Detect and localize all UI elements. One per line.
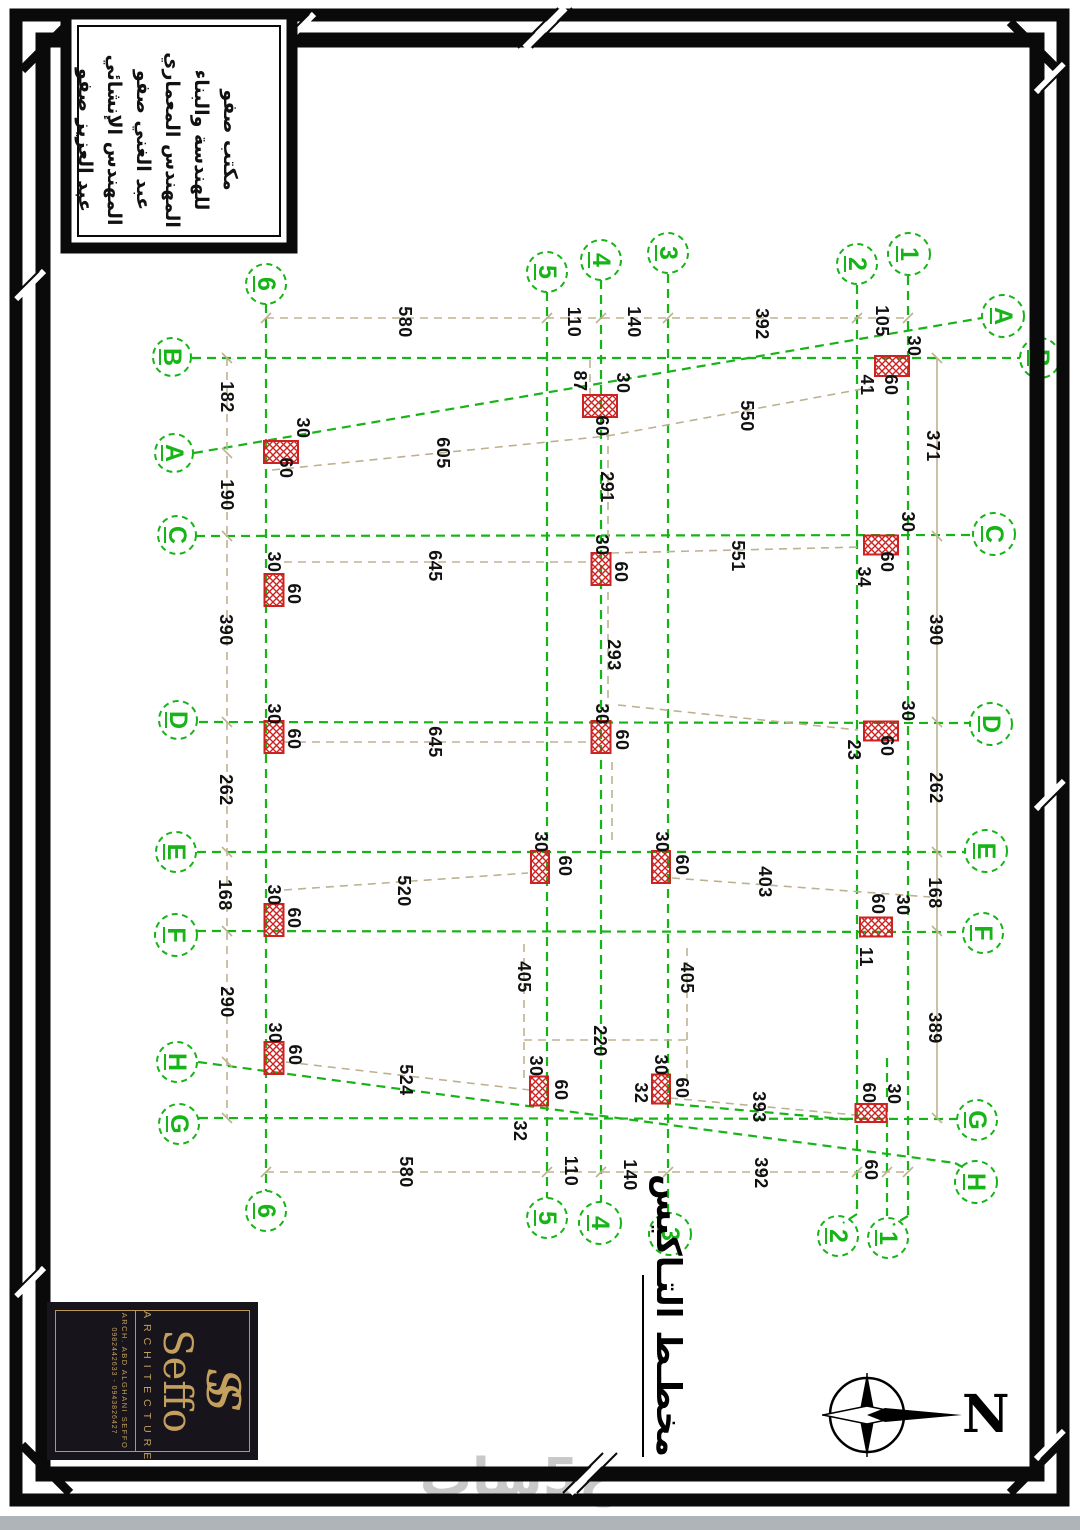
dim-label: 551 <box>728 540 748 572</box>
dim-label: 60 <box>284 907 304 928</box>
grid-bubble-label: H <box>962 1173 990 1191</box>
dim-label: 30 <box>592 703 612 724</box>
dim-label: 30 <box>904 335 924 356</box>
grid-bubble-label: G <box>165 1114 193 1133</box>
dim-label: 30 <box>893 894 913 915</box>
khamsat-watermark: خ5سات <box>408 1448 628 1508</box>
wall-line <box>843 1214 857 1223</box>
dim-label: 30 <box>613 372 633 393</box>
dim-label: 11 <box>856 947 876 967</box>
column-marker <box>860 918 892 937</box>
dim-label: 30 <box>264 551 284 572</box>
grid-bubble-label: 6 <box>252 1204 280 1218</box>
logo-tagline: ARCHITECTURE <box>135 1311 153 1451</box>
dim-label: 32 <box>631 1082 651 1103</box>
dim-label: 393 <box>749 1091 769 1123</box>
grid-line-horizontal <box>196 535 973 536</box>
dim-label: 403 <box>755 866 775 898</box>
grid-bubble-label: 6 <box>252 277 280 291</box>
dim-label: 60 <box>276 457 296 478</box>
grid-bubble-label: B <box>1026 349 1054 367</box>
dim-label: 60 <box>555 855 575 876</box>
title-block-line: عبد الغني صفو <box>128 45 154 235</box>
bottom-strip <box>0 1516 1080 1530</box>
dim-label: 60 <box>612 729 632 750</box>
grid-bubble-label: A <box>989 307 1017 325</box>
dim-label: 290 <box>217 986 237 1018</box>
grid-bubble-label: D <box>164 711 192 729</box>
grid-bubble-label: F <box>162 927 190 942</box>
seffo-logo: SS Seffo ARCHITECTURE ARCH. ABD ALGHANI … <box>47 1302 258 1460</box>
dim-label: 60 <box>868 893 888 914</box>
column-marker <box>652 1075 670 1104</box>
dim-label: 520 <box>394 875 414 907</box>
dim-label: 30 <box>265 1022 285 1043</box>
dim-label: 60 <box>611 561 631 582</box>
title-block: مكتب صفو للهندسة والبناء المهندس المعمار… <box>60 8 297 253</box>
logo-subtitle: ARCH. ABD ALGHANI SEFFO <box>120 1311 129 1451</box>
grid-bubble-label: E <box>162 844 190 861</box>
dim-label: 389 <box>925 1012 945 1044</box>
grid-bubble-label: 4 <box>586 1216 614 1230</box>
column-marker <box>265 1042 284 1074</box>
dim-label: 168 <box>215 879 235 911</box>
grid-bubble-label: B <box>158 348 186 366</box>
dim-label: 371 <box>923 430 943 462</box>
dim-label: 110 <box>564 307 584 338</box>
dim-label: 30 <box>531 831 551 852</box>
dim-label: 392 <box>752 308 772 340</box>
dim-label: 30 <box>898 511 918 532</box>
dim-label: 390 <box>216 614 236 646</box>
dim-label: 168 <box>925 877 945 909</box>
dim-label: 87 <box>570 370 590 391</box>
dim-label: 60 <box>877 735 897 756</box>
dim-label: 30 <box>884 1083 904 1104</box>
dim-label: 30 <box>293 417 313 438</box>
column-marker <box>875 356 909 376</box>
dim-label: 60 <box>861 1159 881 1180</box>
grid-bubble-label: D <box>977 715 1005 733</box>
logo-monogram-icon: SS <box>199 1311 247 1451</box>
grid-bubble-label: 5 <box>533 265 561 279</box>
dim-label: 60 <box>877 551 897 572</box>
logo-phones: 0982442633 - 0943826427 <box>110 1311 117 1451</box>
dim-label: 60 <box>284 583 304 604</box>
title-block-line: المهندس المعماري <box>157 45 183 235</box>
dim-label: 60 <box>285 1044 305 1065</box>
column-marker <box>583 395 617 417</box>
column-marker <box>265 574 284 606</box>
dim-label: 60 <box>859 1082 879 1103</box>
dim-label: 23 <box>844 739 864 760</box>
dim-label: 390 <box>926 614 946 646</box>
grid-bubble-label: 2 <box>843 257 871 271</box>
dim-label: 30 <box>898 700 918 721</box>
dim-label: 30 <box>264 703 284 724</box>
dim-label: 105 <box>872 305 892 337</box>
dim-label: 30 <box>652 831 672 852</box>
grid-bubble-label: F <box>969 925 997 940</box>
dim-label: 405 <box>514 961 534 993</box>
dim-label: 60 <box>881 374 901 395</box>
dim-label: 605 <box>433 437 453 469</box>
dim-label: 30 <box>592 534 612 555</box>
title-block-line: مكتب صفو <box>215 45 241 235</box>
dim-label: 293 <box>604 639 624 671</box>
title-block-line: للهندسة والبناء <box>186 45 212 235</box>
dim-label: 30 <box>264 884 284 905</box>
grid-line-horizontal <box>198 1062 955 1163</box>
drawing-title: مخطـط التـاكيس <box>642 1275 688 1457</box>
grid-bubble-label: H <box>163 1053 191 1071</box>
grid-bubble-label: 1 <box>874 1231 902 1245</box>
grid-bubble-label: 2 <box>824 1229 852 1243</box>
column-marker <box>592 553 611 585</box>
grid-bubble-label: C <box>163 526 191 544</box>
dim-label: 30 <box>526 1055 546 1076</box>
column-marker <box>531 851 549 883</box>
grid-bubble-label: G <box>963 1110 991 1129</box>
dim-label: 30 <box>651 1054 671 1075</box>
dim-label: 262 <box>216 774 236 806</box>
logo-name: Seffo <box>155 1311 199 1451</box>
grid-bubble-label: A <box>160 444 188 462</box>
dim-label: 60 <box>672 1077 692 1098</box>
dim-label: 262 <box>926 772 946 804</box>
dim-label: 32 <box>510 1120 530 1141</box>
column-marker <box>265 721 284 753</box>
dim-label: 60 <box>672 854 692 875</box>
grid-line-horizontal <box>197 931 963 932</box>
dim-label: 645 <box>425 726 445 758</box>
dimension-line <box>672 878 930 897</box>
dim-label: 524 <box>396 1064 416 1096</box>
dim-label: 645 <box>425 550 445 582</box>
grid-bubble-label: E <box>972 843 1000 860</box>
dim-label: 60 <box>551 1079 571 1100</box>
dim-label: 140 <box>624 306 644 338</box>
column-marker <box>265 904 284 936</box>
column-marker <box>592 721 611 753</box>
column-marker <box>530 1077 548 1106</box>
dim-label: 392 <box>751 1157 771 1189</box>
dim-label: 110 <box>561 1156 581 1187</box>
title-block-line: المهندس الإنشائي <box>99 45 125 235</box>
grid-bubble-label: C <box>980 525 1008 543</box>
dim-label: 220 <box>590 1025 610 1057</box>
dim-label: 190 <box>217 479 237 511</box>
column-marker <box>856 1104 887 1122</box>
dim-label: 60 <box>592 415 612 436</box>
title-block-line: عبد العزيز صفو <box>70 45 96 235</box>
column-marker <box>652 851 670 883</box>
dim-label: 291 <box>597 471 617 503</box>
dim-label: 34 <box>854 566 874 587</box>
dim-label: 140 <box>620 1159 640 1191</box>
grid-bubble-label: 4 <box>587 253 615 267</box>
grid-line-horizontal <box>199 722 970 723</box>
dimension-line <box>618 705 858 730</box>
dim-label: 580 <box>396 1156 416 1188</box>
dim-label: 182 <box>217 381 237 413</box>
drawing-sheet: 665544332211BBAACCDDEEFFGGHH580110140392… <box>0 0 1080 1530</box>
grid-bubble-label: 3 <box>654 246 682 260</box>
north-label: N <box>962 1384 1010 1445</box>
dim-label: 60 <box>284 728 304 749</box>
dim-label: 580 <box>395 306 415 338</box>
dim-label: 550 <box>737 400 757 432</box>
grid-bubble-label: 5 <box>533 1211 561 1225</box>
grid-bubble-label: 1 <box>895 247 923 261</box>
dim-label: 405 <box>677 962 697 994</box>
dim-label: 41 <box>857 374 877 395</box>
